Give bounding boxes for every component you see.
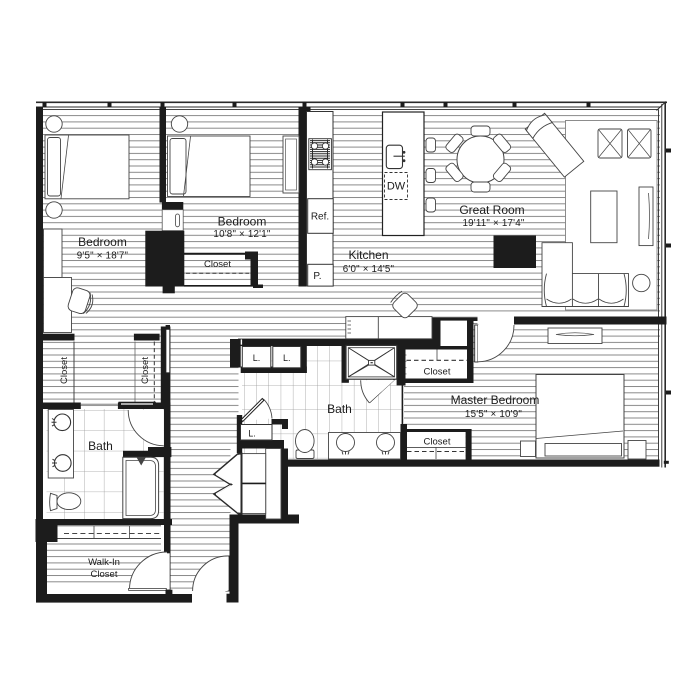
- svg-text:Bath: Bath: [327, 402, 352, 416]
- svg-text:10'8" × 12'1": 10'8" × 12'1": [213, 229, 270, 240]
- svg-text:Closet: Closet: [59, 357, 70, 384]
- svg-text:L.: L.: [253, 353, 261, 363]
- svg-text:Kitchen: Kitchen: [348, 248, 388, 262]
- svg-text:Closet: Closet: [140, 357, 151, 384]
- svg-text:Closet: Closet: [91, 569, 118, 580]
- svg-text:P.: P.: [313, 271, 321, 282]
- svg-text:Master Bedroom: Master Bedroom: [451, 393, 540, 407]
- svg-text:Walk-In: Walk-In: [88, 557, 120, 568]
- svg-text:19'11" × 17'4": 19'11" × 17'4": [462, 218, 524, 229]
- svg-text:Ref.: Ref.: [311, 212, 329, 223]
- svg-text:Closet: Closet: [424, 437, 451, 448]
- svg-text:Closet: Closet: [204, 259, 231, 270]
- svg-text:Bedroom: Bedroom: [218, 215, 267, 229]
- svg-text:L.: L.: [248, 429, 256, 439]
- svg-text:Bath: Bath: [88, 439, 113, 453]
- svg-text:DW: DW: [387, 181, 406, 193]
- svg-text:15'5" × 10'9": 15'5" × 10'9": [465, 409, 522, 420]
- svg-text:L.: L.: [283, 353, 291, 363]
- svg-text:Closet: Closet: [424, 367, 451, 378]
- svg-text:9'5" × 18'7": 9'5" × 18'7": [77, 251, 129, 262]
- svg-text:Great Room: Great Room: [459, 203, 524, 217]
- svg-text:6'0" × 14'5": 6'0" × 14'5": [343, 264, 395, 275]
- svg-text:Bedroom: Bedroom: [78, 235, 127, 249]
